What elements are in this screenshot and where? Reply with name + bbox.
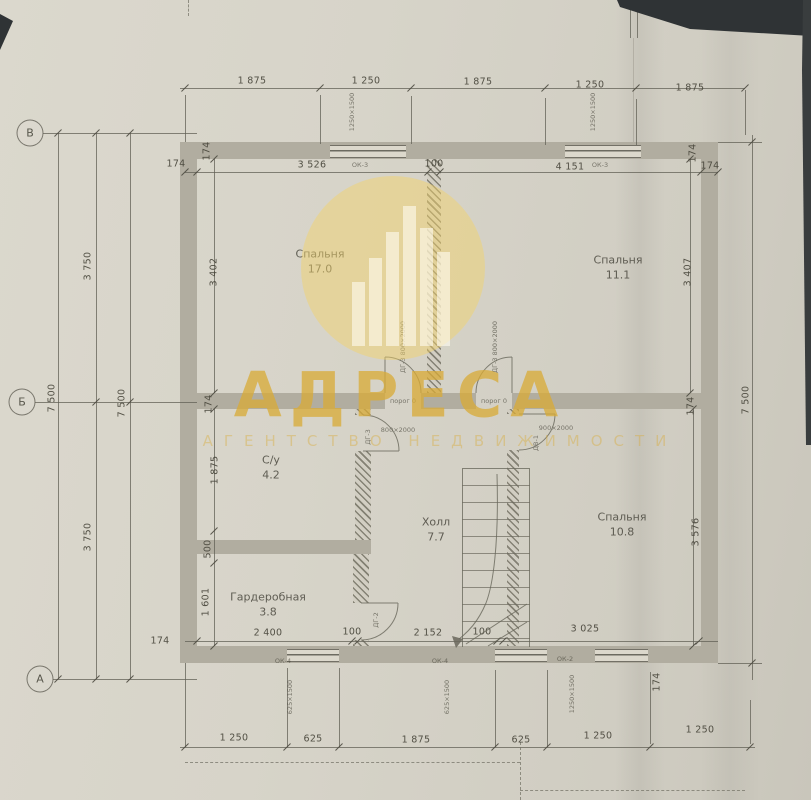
dim-line: [752, 135, 753, 680]
dim-label: 1 250: [576, 80, 605, 91]
window-tag-size: 1250×1500: [589, 93, 597, 132]
dim-line: [58, 133, 59, 679]
room-name: Спальня: [594, 254, 643, 267]
dim-label: 100: [472, 627, 491, 638]
dim-label: 7 500: [741, 386, 752, 415]
dim-label: 174: [204, 394, 215, 413]
dim-label: 174: [700, 161, 719, 172]
photo-background-right-edge: [802, 0, 811, 445]
wall-right: [701, 142, 718, 663]
room-label-hall: Холл 7.7: [422, 515, 450, 546]
photo-background-top-left: [0, 14, 13, 50]
sheet-edge-line: [722, 0, 723, 30]
window-tag: ОК-4: [275, 657, 291, 665]
dim-label: 7 500: [47, 384, 58, 413]
dim-label: 174: [688, 143, 699, 162]
dim-label: 3 750: [83, 523, 94, 552]
window-bottom-right: [595, 649, 648, 662]
window-tag: ОК-4: [432, 657, 448, 665]
witness-line: [185, 95, 186, 142]
dim-label: 100: [424, 159, 443, 170]
dim-label: 174: [166, 159, 185, 170]
dim-label: 625: [511, 735, 530, 746]
dim-label: 500: [203, 539, 214, 558]
dim-label: 1 875: [210, 456, 221, 485]
dim-label: 3 576: [691, 518, 702, 547]
witness-line: [339, 668, 340, 747]
dim-label: 174: [150, 636, 169, 647]
room-area: 11.1: [606, 269, 631, 282]
window-tag: ОК-2: [557, 655, 573, 663]
room-name: С/у: [262, 454, 280, 467]
door-tag: ДГ-2: [372, 612, 380, 628]
dim-label: 3 025: [571, 624, 600, 635]
dim-label: 7 500: [117, 389, 128, 418]
window-bottom-center: [495, 649, 547, 662]
room-area: 10.8: [610, 526, 635, 539]
dim-line: [185, 641, 718, 642]
room-area: 3.8: [259, 606, 277, 619]
axis-marker-v: В: [17, 120, 44, 147]
wall-bathroom: [355, 451, 371, 547]
room-label-wardrobe: Гардеробная 3.8: [230, 590, 306, 621]
watermark-logo-bar: [369, 258, 382, 346]
dim-label: 2 152: [414, 628, 443, 639]
watermark-logo-bar: [352, 282, 365, 346]
window-tag-size: 625×1500: [443, 680, 451, 714]
room-label-bedroom2: Спальня 11.1: [594, 253, 643, 284]
dim-label: 3 750: [83, 252, 94, 281]
dim-label: 3 402: [209, 258, 220, 287]
dim-line: [130, 133, 131, 679]
witness-line: [185, 663, 186, 747]
dim-label: 1 875: [402, 735, 431, 746]
projection-dash-line: [520, 790, 745, 791]
witness-line: [411, 96, 412, 144]
watermark-logo-bar: [437, 252, 450, 346]
axis-marker-a: А: [27, 666, 54, 693]
window-bottom-left: [287, 649, 339, 662]
witness-line: [545, 98, 546, 145]
window-tag-size: 1250×1500: [348, 93, 356, 132]
wall-wardrobe: [353, 554, 369, 603]
door-tag-size: 800×2000: [491, 321, 499, 355]
dim-line: [180, 747, 755, 748]
dim-label: 174: [652, 672, 663, 691]
witness-line: [547, 670, 548, 747]
watermark-logo-bar: [420, 228, 433, 346]
dim-label: 1 250: [584, 731, 613, 742]
window-top-left: [330, 145, 406, 158]
dim-label: 1 875: [464, 77, 493, 88]
dim-label: 1 875: [238, 76, 267, 87]
window-tag-size: 625×1500: [286, 680, 294, 714]
projection-dash-line: [520, 742, 521, 800]
axis-label-v: В: [26, 127, 34, 140]
dim-label: 2 400: [254, 628, 283, 639]
dim-label: 3 407: [683, 258, 694, 287]
dim-line: [180, 88, 745, 89]
dim-line: [185, 172, 718, 173]
room-name: Спальня: [598, 511, 647, 524]
watermark-logo-bar: [386, 232, 399, 346]
window-tag-size: 1250×1500: [568, 675, 576, 714]
dim-label: 4 151: [556, 162, 585, 173]
window-tag: ОК-3: [592, 161, 608, 169]
room-area: 4.2: [262, 469, 280, 482]
witness-line: [320, 95, 321, 144]
axis-line-v: [43, 133, 197, 134]
sheet-edge-line: [637, 0, 638, 38]
watermark-brand: АДРЕСА: [234, 359, 566, 432]
witness-line: [495, 670, 496, 747]
dim-label: 3 526: [298, 160, 327, 171]
projection-dash-line: [185, 762, 520, 763]
room-label-bedroom3: Спальня 10.8: [598, 510, 647, 541]
axis-line-a: [53, 679, 197, 680]
witness-line: [718, 142, 762, 143]
axis-marker-b: Б: [9, 389, 36, 416]
dim-label: 1 250: [352, 76, 381, 87]
witness-line: [718, 663, 762, 664]
room-name: Холл: [422, 516, 450, 529]
dim-line: [96, 133, 97, 679]
dim-label: 625: [303, 734, 322, 745]
sheet-edge-line: [630, 0, 631, 38]
axis-label-b: Б: [18, 396, 26, 409]
witness-line: [745, 90, 746, 135]
dim-label: 1 250: [220, 733, 249, 744]
dim-label: 174: [202, 141, 213, 160]
axis-label-a: А: [36, 673, 44, 686]
room-area: 7.7: [427, 531, 445, 544]
room-name: Гардеробная: [230, 591, 306, 604]
dim-label: 1 875: [676, 83, 705, 94]
watermark-logo-bar: [403, 206, 416, 346]
dim-label: 100: [342, 627, 361, 638]
room-label-bathroom: С/у 4.2: [262, 453, 280, 484]
window-top-right: [565, 145, 641, 158]
dim-label: 1 250: [686, 725, 715, 736]
dim-label: 174: [686, 396, 697, 415]
watermark-subtitle: АГЕНТСТВО НЕДВИЖИМОСТИ: [203, 432, 678, 450]
witness-line: [636, 99, 637, 145]
scanned-floor-plan-sheet: В Б А 1 875 1 250 1 875 1 250 1 875 174 …: [0, 0, 811, 800]
window-tag: ОК-3: [352, 161, 368, 169]
sheet-edge-line: [188, 0, 189, 16]
dim-label: 1 601: [201, 588, 212, 617]
witness-line: [750, 700, 751, 744]
staircase: [462, 468, 530, 647]
wall-bathroom-bottom: [197, 540, 371, 554]
